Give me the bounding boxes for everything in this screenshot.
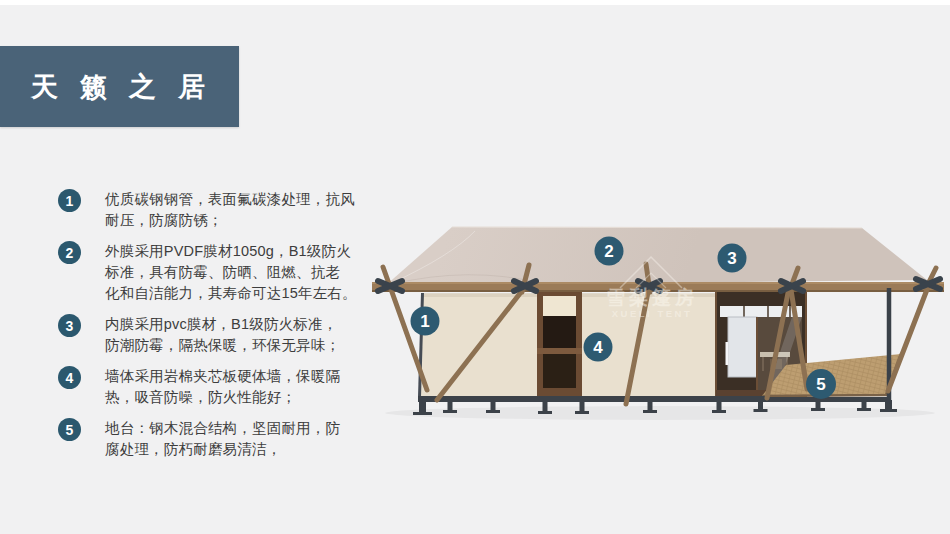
feature-text: 墙体采用岩棉夹芯板硬体墙，保暖隔 热，吸音防噪，防火性能好；: [105, 366, 340, 408]
feature-text: 外膜采用PVDF膜材1050g，B1级防火 标准，具有防霉、防晒、阻燃、抗老 化…: [105, 241, 357, 304]
feature-list: 1 优质碳钢钢管，表面氟碳漆处理，抗风 耐压，防腐防锈； 2 外膜采用PVDF膜…: [58, 189, 373, 470]
marker-5: 5: [806, 369, 836, 399]
watermark-cn: 雪梨篷房: [606, 287, 698, 308]
number-badge: 3: [58, 314, 81, 337]
feature-line: 耐压，防腐防锈；: [105, 210, 355, 231]
marker-2: 2: [595, 237, 624, 266]
number-badge: 2: [58, 241, 81, 264]
number-badge: 5: [58, 418, 81, 441]
marker-4: 4: [584, 333, 613, 362]
white-sliding-door: [728, 317, 757, 377]
tent-render: 雪梨篷房 XUELI TENT 1 2 3 4 5: [360, 200, 950, 434]
feature-line: 内膜采用pvc膜材，B1级防火标准，: [105, 314, 340, 335]
number-badge: 1: [58, 189, 81, 212]
feature-line: 外膜采用PVDF膜材1050g，B1级防火: [105, 241, 357, 262]
marker-label: 1: [420, 312, 429, 331]
list-item: 5 地台：钢木混合结构，坚固耐用，防 腐处理，防朽耐磨易清洁，: [58, 418, 373, 460]
tent-door-left: [537, 289, 582, 397]
feature-text: 地台：钢木混合结构，坚固耐用，防 腐处理，防朽耐磨易清洁，: [105, 418, 340, 460]
marker-label: 3: [727, 249, 736, 268]
marker-label: 5: [816, 375, 825, 394]
tent-roof: [385, 227, 927, 286]
marker-label: 2: [604, 242, 613, 261]
marker-1: 1: [411, 307, 440, 336]
top-white-strip: [0, 0, 950, 5]
list-item: 3 内膜采用pvc膜材，B1级防火标准， 防潮防霉，隔热保暖，环保无异味；: [58, 314, 373, 356]
marker-label: 4: [593, 338, 603, 357]
title-box: 天籁之居: [0, 46, 239, 127]
feature-line: 化和自洁能力，其寿命可达15年左右。: [105, 283, 357, 304]
ground-shadow: [385, 406, 935, 420]
number-badge: 4: [58, 366, 81, 389]
marker-3: 3: [718, 244, 747, 273]
list-item: 2 外膜采用PVDF膜材1050g，B1级防火 标准，具有防霉、防晒、阻燃、抗老…: [58, 241, 373, 304]
feature-line: 热，吸音防噪，防火性能好；: [105, 387, 340, 408]
feature-line: 防潮防霉，隔热保暖，环保无异味；: [105, 335, 340, 356]
watermark-en: XUELI TENT: [612, 308, 692, 319]
feature-line: 腐处理，防朽耐磨易清洁，: [105, 439, 340, 460]
feature-line: 优质碳钢钢管，表面氟碳漆处理，抗风: [105, 189, 355, 210]
feature-text: 内膜采用pvc膜材，B1级防火标准， 防潮防霉，隔热保暖，环保无异味；: [105, 314, 340, 356]
feature-line: 地台：钢木混合结构，坚固耐用，防: [105, 418, 340, 439]
page-title: 天籁之居: [0, 69, 227, 105]
feature-line: 墙体采用岩棉夹芯板硬体墙，保暖隔: [105, 366, 340, 387]
feature-line: 标准，具有防霉、防晒、阻燃、抗老: [105, 262, 357, 283]
feature-text: 优质碳钢钢管，表面氟碳漆处理，抗风 耐压，防腐防锈；: [105, 189, 355, 231]
list-item: 4 墙体采用岩棉夹芯板硬体墙，保暖隔 热，吸音防噪，防火性能好；: [58, 366, 373, 408]
list-item: 1 优质碳钢钢管，表面氟碳漆处理，抗风 耐压，防腐防锈；: [58, 189, 373, 231]
door-handle: [726, 342, 729, 365]
